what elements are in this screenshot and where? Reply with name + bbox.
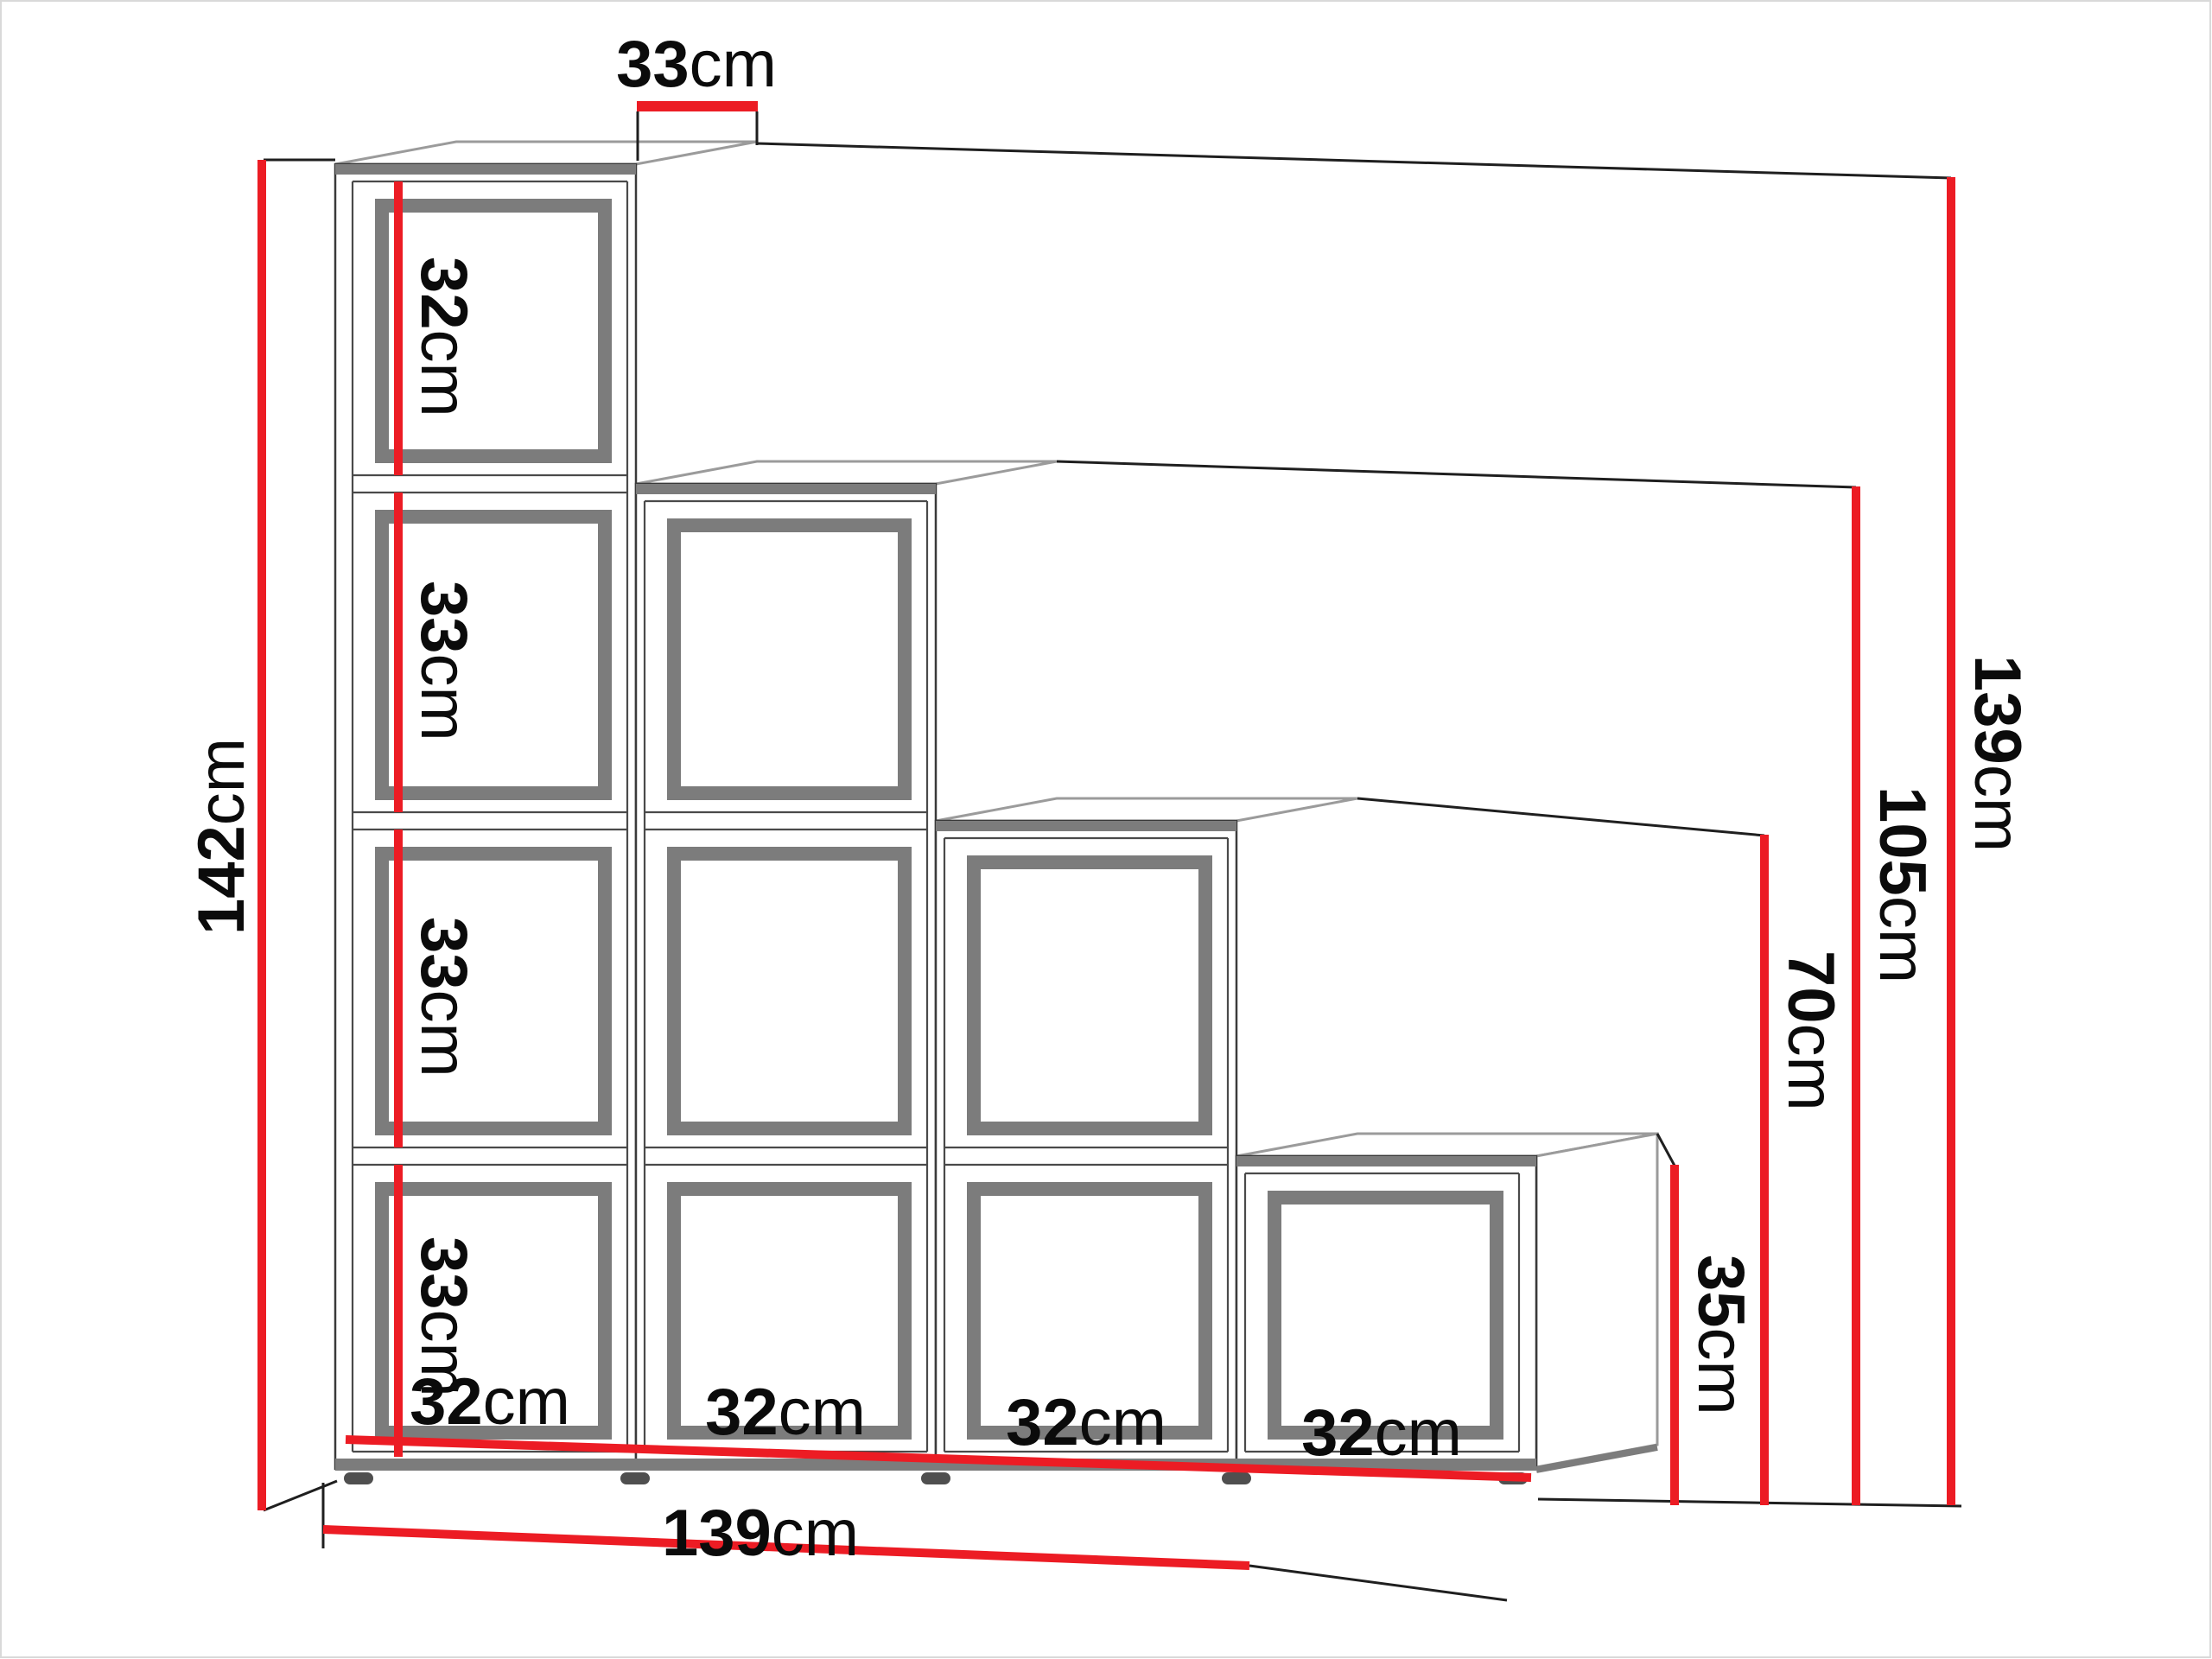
ext-step3-to-70 <box>1357 798 1764 836</box>
label-cube1-width: 32cm <box>410 1365 570 1439</box>
svg-text:32cm: 32cm <box>407 257 480 417</box>
step3-top-edge <box>936 821 1236 831</box>
step3-top-surface <box>936 798 1357 821</box>
dimension-diagram-page: 33cm 142cm 32cm 33cm 33cm 33cm 139cm 105… <box>0 0 2212 1659</box>
label-cube2-width: 32cm <box>705 1376 866 1449</box>
svg-text:33cm: 33cm <box>407 917 480 1077</box>
ext-step1-to-139 <box>757 143 1951 178</box>
step2-top-edge <box>636 484 936 494</box>
ext-step4-to-35 <box>1657 1134 1675 1166</box>
svg-text:33cm: 33cm <box>407 581 480 741</box>
step1-top-surface <box>335 142 757 164</box>
label-cube3-width: 32cm <box>1006 1386 1166 1459</box>
label-cube1-height: 32cm <box>407 257 480 417</box>
svg-text:70cm: 70cm <box>1774 950 1847 1111</box>
label-step-35cm: 35cm <box>1684 1255 1758 1415</box>
cube-opening <box>674 525 905 793</box>
label-cube3-height: 33cm <box>407 917 480 1077</box>
foot <box>620 1472 650 1484</box>
label-cube2-height: 33cm <box>407 581 480 741</box>
label-step-105cm: 105cm <box>1866 786 1939 983</box>
label-depth-33cm: 33cm <box>616 28 777 101</box>
ext-step2-to-105 <box>1057 461 1856 487</box>
label-height-142cm: 142cm <box>185 738 258 935</box>
label-step-70cm: 70cm <box>1774 950 1847 1111</box>
step4-top-edge <box>1236 1156 1536 1166</box>
cube-opening <box>674 854 905 1128</box>
ext-bottom-left <box>264 1481 337 1510</box>
svg-text:139cm: 139cm <box>1961 655 2034 852</box>
svg-text:105cm: 105cm <box>1866 786 1939 983</box>
svg-text:142cm: 142cm <box>185 738 258 935</box>
foot <box>921 1472 950 1484</box>
svg-text:35cm: 35cm <box>1684 1255 1758 1415</box>
step2-top-surface <box>636 461 1057 484</box>
cube-opening <box>974 862 1205 1128</box>
ext-floor-right <box>1538 1499 1961 1506</box>
step4-side-surface <box>1536 1134 1657 1467</box>
step1-top-edge <box>335 164 636 175</box>
label-cube4-width: 32cm <box>1301 1396 1462 1470</box>
step-shelf-diagram: 33cm 142cm 32cm 33cm 33cm 33cm 139cm 105… <box>0 0 2212 1659</box>
label-width-139cm: 139cm <box>662 1497 859 1570</box>
ext-width-right-tick <box>1249 1566 1507 1600</box>
label-step-139cm: 139cm <box>1961 655 2034 852</box>
foot <box>344 1472 373 1484</box>
foot <box>1222 1472 1251 1484</box>
shelf-front <box>335 164 1657 1484</box>
